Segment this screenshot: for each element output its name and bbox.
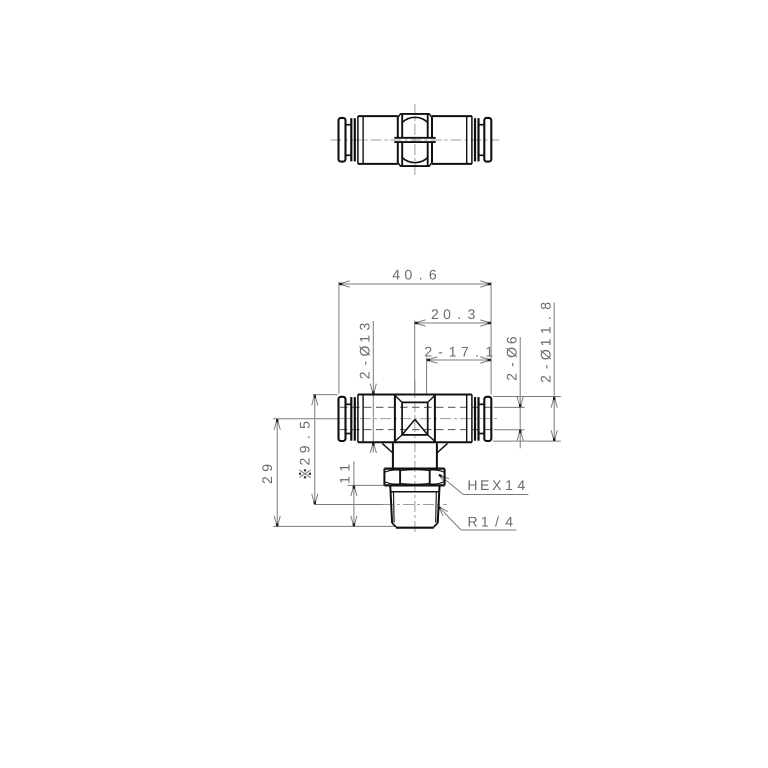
svg-text:HEX14: HEX14 — [467, 477, 525, 493]
svg-text:2-Ø6: 2-Ø6 — [504, 336, 520, 381]
